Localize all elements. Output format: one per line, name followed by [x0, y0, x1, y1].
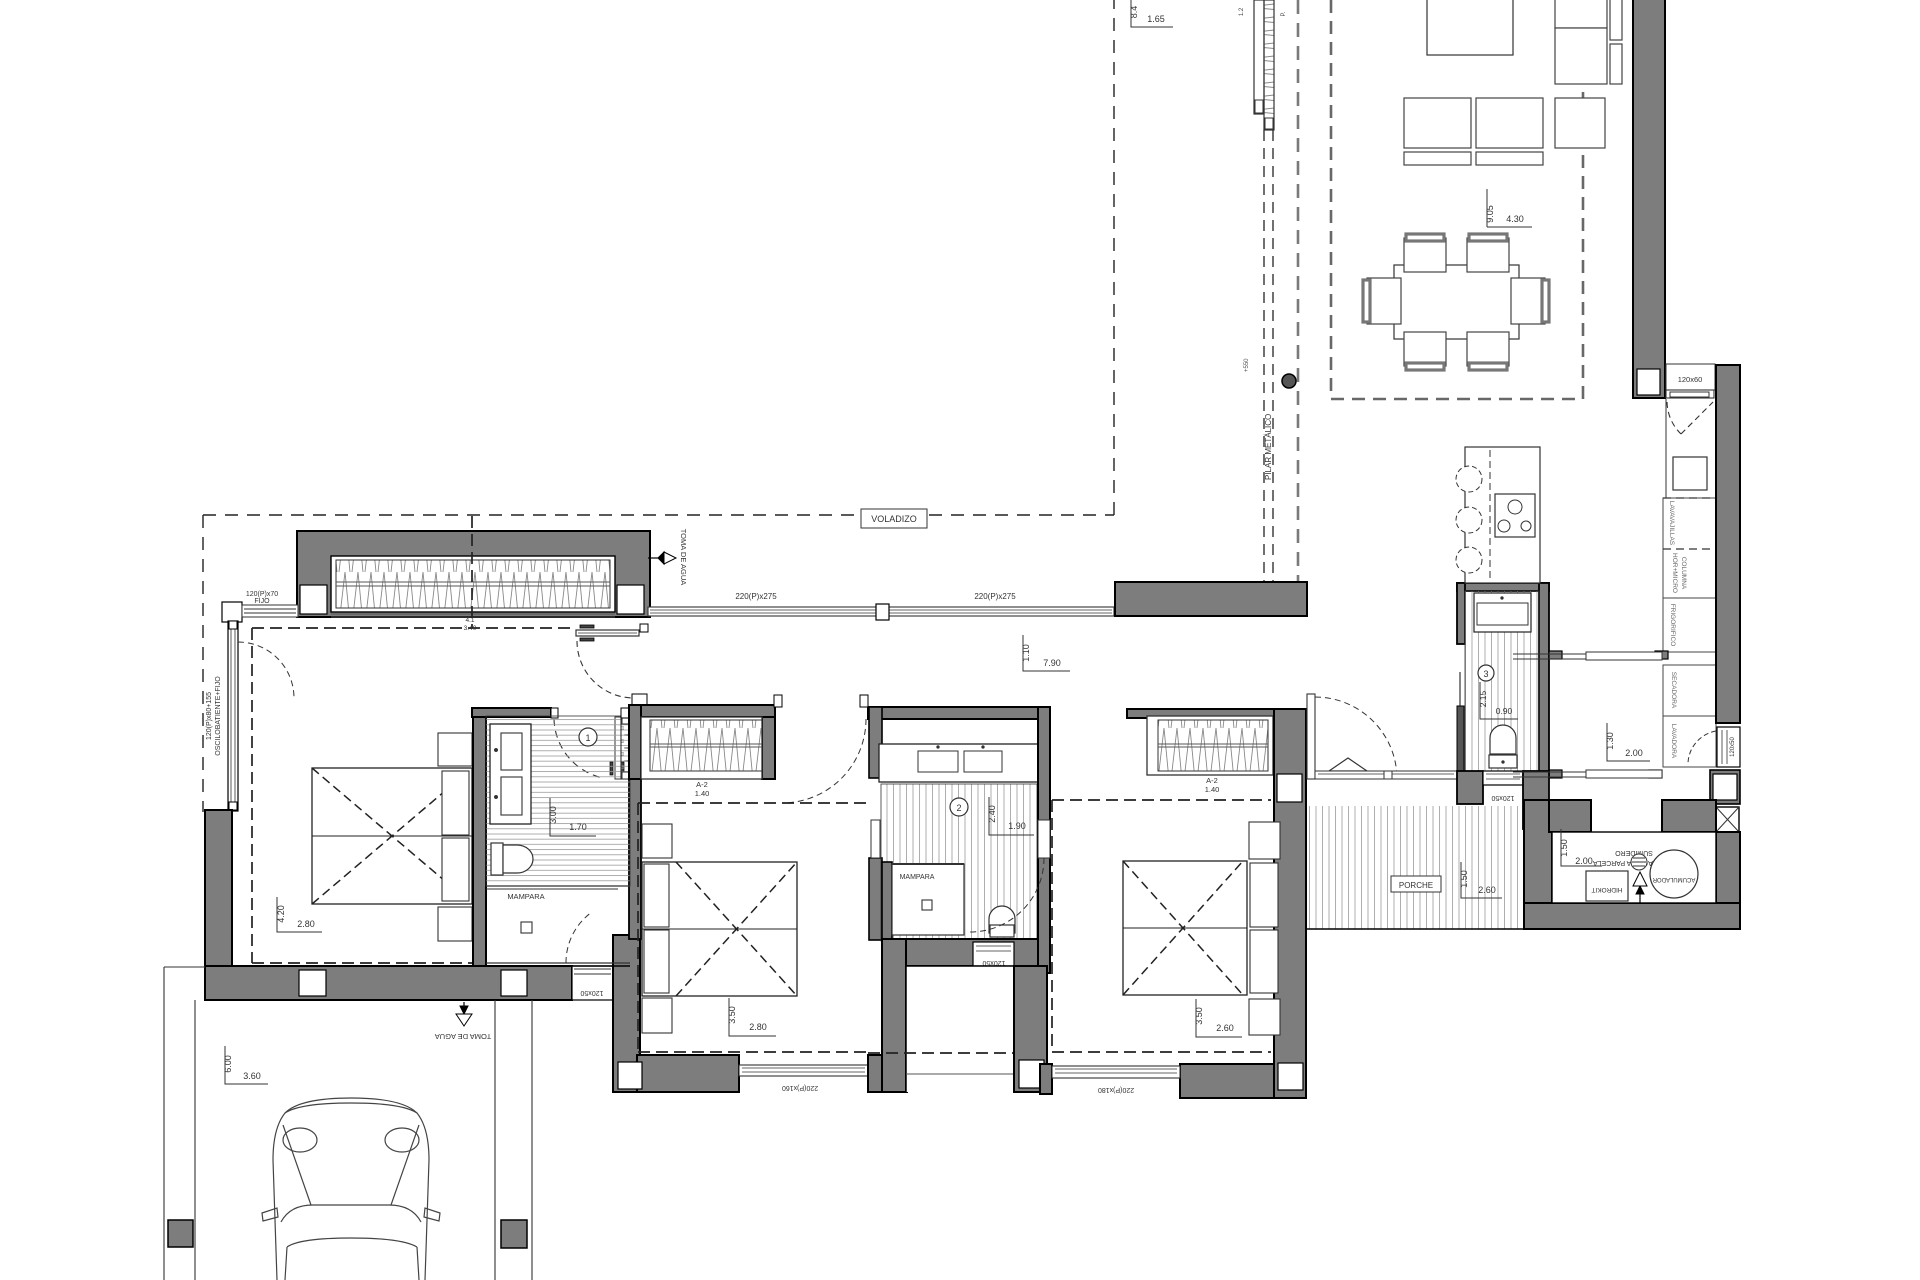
- svg-text:1.40: 1.40: [695, 789, 710, 798]
- svg-text:1.65: 1.65: [1147, 14, 1165, 24]
- svg-text:OSCILOBATIENTE+FIJO: OSCILOBATIENTE+FIJO: [215, 676, 222, 756]
- svg-text:A-2: A-2: [1206, 776, 1218, 785]
- svg-text:VOLADIZO: VOLADIZO: [871, 514, 917, 524]
- svg-text:FIJO: FIJO: [254, 598, 270, 605]
- svg-text:120(P)x80+155: 120(P)x80+155: [206, 692, 213, 740]
- svg-text:220(P)x275: 220(P)x275: [974, 592, 1016, 601]
- svg-text:A-2: A-2: [696, 780, 708, 789]
- svg-text:120x50: 120x50: [1730, 736, 1736, 756]
- svg-text:220(P)x160: 220(P)x160: [782, 1084, 818, 1091]
- svg-text:+550: +550: [1244, 358, 1250, 372]
- svg-text:SUMIDERO: SUMIDERO: [1615, 849, 1653, 856]
- svg-text:MAMPARA: MAMPARA: [507, 892, 544, 901]
- svg-text:2.60: 2.60: [1478, 885, 1496, 895]
- svg-text:COLUMNA: COLUMNA: [1680, 557, 1687, 590]
- svg-text:3.50: 3.50: [1194, 1007, 1204, 1025]
- svg-text:3.50: 3.50: [727, 1006, 737, 1024]
- svg-text:4.30: 4.30: [1506, 214, 1524, 224]
- svg-text:220(P)x275: 220(P)x275: [735, 592, 777, 601]
- svg-text:120x50: 120x50: [982, 959, 1005, 966]
- svg-text:120x50: 120x50: [1491, 794, 1514, 801]
- svg-text:LAVADORA: LAVADORA: [1670, 724, 1677, 759]
- svg-text:0.90: 0.90: [1496, 706, 1513, 716]
- svg-text:1.50: 1.50: [1459, 870, 1469, 888]
- svg-text:1.70: 1.70: [569, 822, 587, 832]
- svg-text:1.2: 1.2: [1239, 7, 1245, 16]
- svg-text:2.80: 2.80: [749, 1022, 767, 1032]
- svg-text:2.00: 2.00: [1625, 748, 1643, 758]
- svg-text:2.40: 2.40: [987, 805, 997, 823]
- svg-text:7.90: 7.90: [1043, 658, 1061, 668]
- svg-text:HOR+MICRO: HOR+MICRO: [1671, 553, 1678, 593]
- svg-text:1: 1: [585, 733, 590, 743]
- svg-text:2.00: 2.00: [1575, 856, 1593, 866]
- svg-text:TOMA DE AGUA: TOMA DE AGUA: [435, 1032, 492, 1041]
- svg-text:2.80: 2.80: [297, 919, 315, 929]
- svg-text:2.60: 2.60: [1216, 1023, 1234, 1033]
- svg-text:6.00: 6.00: [223, 1055, 233, 1073]
- svg-text:PORCHE: PORCHE: [1399, 881, 1433, 890]
- svg-text:120x60: 120x60: [1678, 375, 1703, 384]
- svg-text:9.05: 9.05: [1485, 205, 1495, 223]
- svg-text:1.30: 1.30: [1605, 732, 1615, 750]
- svg-text:120x50: 120x50: [580, 989, 603, 996]
- svg-text:1.50: 1.50: [1559, 839, 1569, 857]
- svg-text:3.40: 3.40: [464, 625, 477, 632]
- svg-text:TOMA DE AGUA: TOMA DE AGUA: [679, 529, 688, 586]
- svg-text:MAMPARA: MAMPARA: [900, 874, 935, 881]
- svg-text:PILAR METÁLICO: PILAR METÁLICO: [1264, 414, 1273, 480]
- svg-text:LAVAVAJILLAS: LAVAVAJILLAS: [1668, 501, 1675, 546]
- svg-text:1.10: 1.10: [1021, 644, 1031, 662]
- svg-text:3.00: 3.00: [548, 806, 558, 824]
- svg-text:8.4: 8.4: [1129, 6, 1139, 19]
- svg-text:120(P)x70: 120(P)x70: [246, 591, 278, 598]
- svg-text:2.15: 2.15: [1478, 690, 1488, 707]
- svg-text:1.90: 1.90: [1008, 821, 1026, 831]
- svg-text:1.40: 1.40: [1205, 785, 1220, 794]
- svg-text:ACUMULADOR: ACUMULADOR: [1652, 876, 1695, 882]
- svg-text:FRIGORIFICO: FRIGORIFICO: [1669, 604, 1676, 647]
- svg-text:4.1: 4.1: [465, 617, 474, 624]
- svg-text:HIDROKIT: HIDROKIT: [1591, 886, 1622, 893]
- svg-text:3.60: 3.60: [243, 1071, 261, 1081]
- svg-text:2: 2: [956, 803, 961, 813]
- svg-text:4.20: 4.20: [276, 905, 286, 923]
- svg-text:220(P)x180: 220(P)x180: [1098, 1086, 1134, 1093]
- svg-text:3: 3: [1483, 669, 1488, 679]
- svg-text:SECADORA: SECADORA: [1670, 672, 1677, 709]
- svg-text:P.: P.: [1281, 11, 1287, 16]
